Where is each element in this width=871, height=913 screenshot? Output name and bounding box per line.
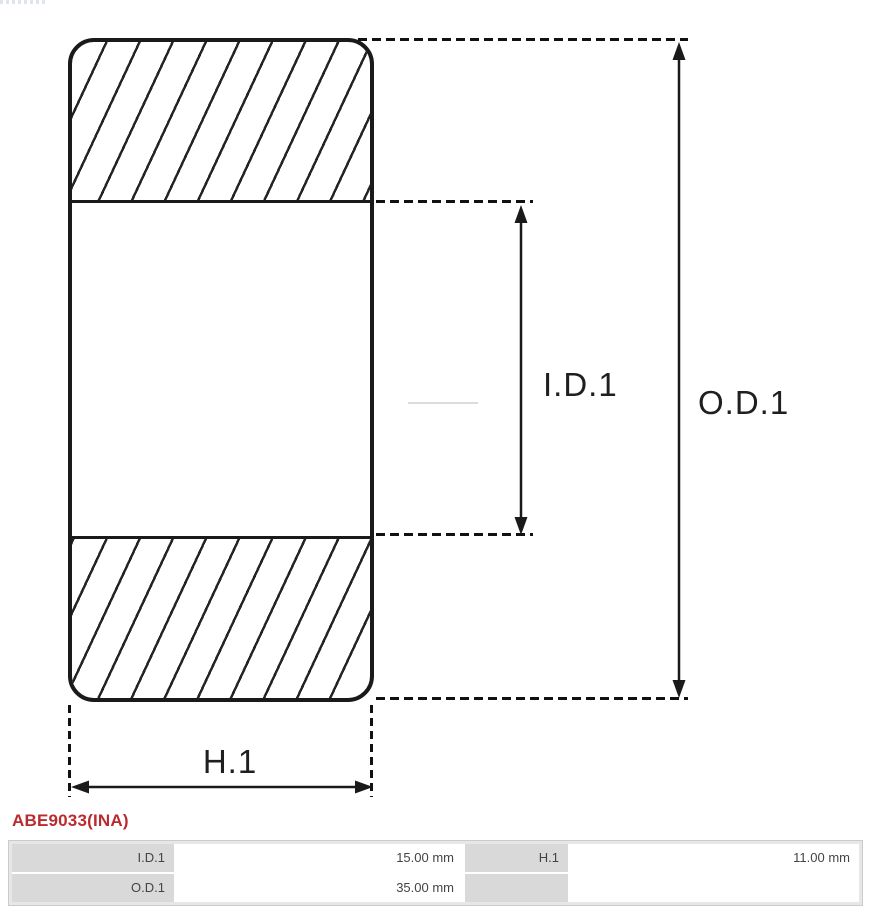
- spec-label-id: I.D.1: [12, 844, 174, 872]
- spec-value-od: 35.00 mm: [176, 874, 463, 902]
- spec-table-grid: I.D.1 15.00 mm H.1 11.00 mm O.D.1 35.00 …: [12, 844, 859, 902]
- extension-line-id-top: [376, 200, 533, 203]
- dimension-arrow-id-icon: [509, 204, 533, 536]
- h-dimension-label: H.1: [180, 743, 280, 781]
- spec-value-h: 11.00 mm: [570, 844, 859, 872]
- spec-label-h: H.1: [465, 844, 568, 872]
- faint-centerline: [408, 402, 478, 404]
- top-left-artifact: [0, 0, 46, 4]
- dimension-arrow-od-icon: [667, 41, 691, 699]
- id-dimension-label: I.D.1: [543, 366, 618, 404]
- page: I.D.1 O.D.1 H.1 ABE9033(INA) I.D.1 15.00…: [0, 0, 871, 913]
- spec-value-empty: [570, 874, 859, 902]
- spec-table: I.D.1 15.00 mm H.1 11.00 mm O.D.1 35.00 …: [8, 840, 863, 906]
- spec-label-od: O.D.1: [12, 874, 174, 902]
- extension-line-od-top: [358, 38, 688, 41]
- hatched-outer-ring-top: [72, 42, 370, 203]
- extension-line-od-bottom: [376, 697, 688, 700]
- hatched-outer-ring-bottom: [72, 536, 370, 698]
- bearing-outline: [68, 38, 374, 702]
- part-number-link[interactable]: ABE9033(INA): [12, 811, 129, 831]
- od-dimension-label: O.D.1: [698, 384, 789, 422]
- spec-label-empty: [465, 874, 568, 902]
- spec-value-id: 15.00 mm: [176, 844, 463, 872]
